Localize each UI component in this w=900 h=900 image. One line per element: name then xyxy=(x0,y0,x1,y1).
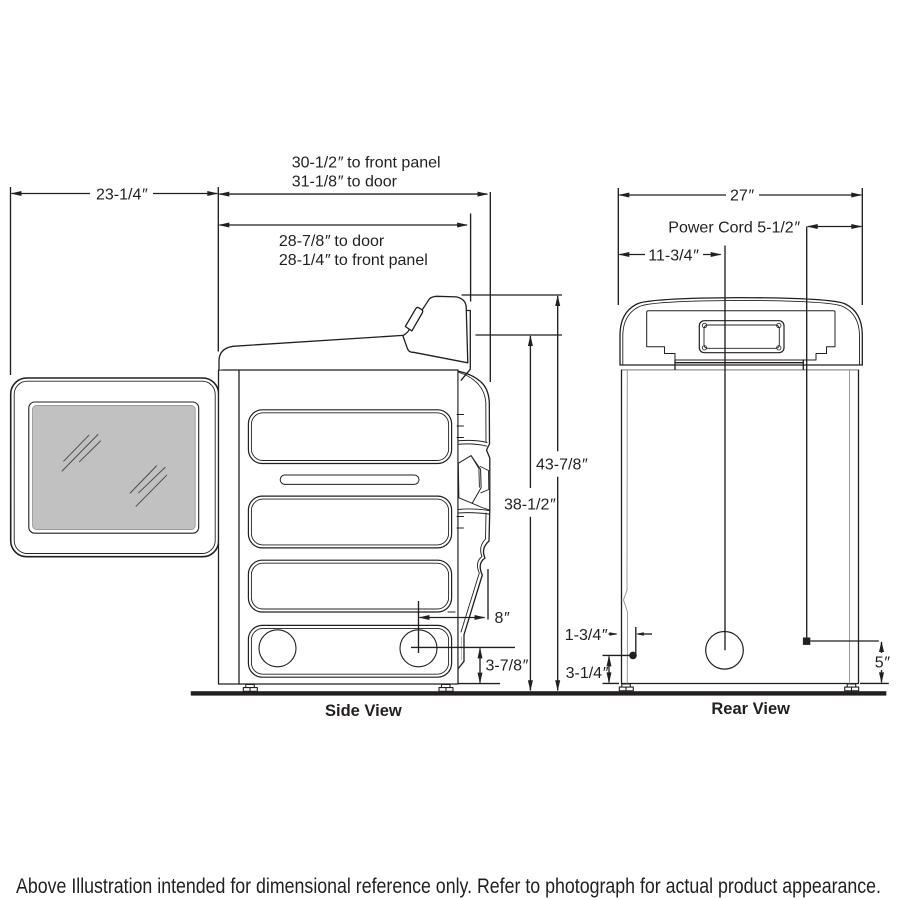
svg-text:11-3/4″: 11-3/4″ xyxy=(648,248,699,265)
svg-text:28-1/4″ to front panel: 28-1/4″ to front panel xyxy=(279,252,428,269)
svg-text:23-1/4″: 23-1/4″ xyxy=(96,187,148,204)
svg-text:Side View: Side View xyxy=(325,702,402,720)
svg-text:28-7/8″ to door: 28-7/8″ to door xyxy=(279,233,385,250)
svg-text:3-7/8″: 3-7/8″ xyxy=(486,658,529,675)
svg-text:31-1/8″ to door: 31-1/8″ to door xyxy=(292,174,398,191)
svg-text:8″: 8″ xyxy=(495,610,511,627)
svg-text:43-7/8″: 43-7/8″ xyxy=(536,457,588,474)
svg-text:3-1/4″: 3-1/4″ xyxy=(566,665,609,682)
svg-text:27″: 27″ xyxy=(730,188,755,205)
svg-text:Above Illustration intended fo: Above Illustration intended for dimensio… xyxy=(16,875,881,898)
svg-text:5″: 5″ xyxy=(875,655,891,672)
svg-text:Rear View: Rear View xyxy=(711,700,790,718)
svg-text:30-1/2″ to front panel: 30-1/2″ to front panel xyxy=(292,155,441,172)
svg-text:Power Cord 5-1/2″: Power Cord 5-1/2″ xyxy=(668,220,800,237)
svg-text:1-3/4″: 1-3/4″ xyxy=(565,627,608,644)
svg-text:38-1/2″: 38-1/2″ xyxy=(504,497,556,514)
